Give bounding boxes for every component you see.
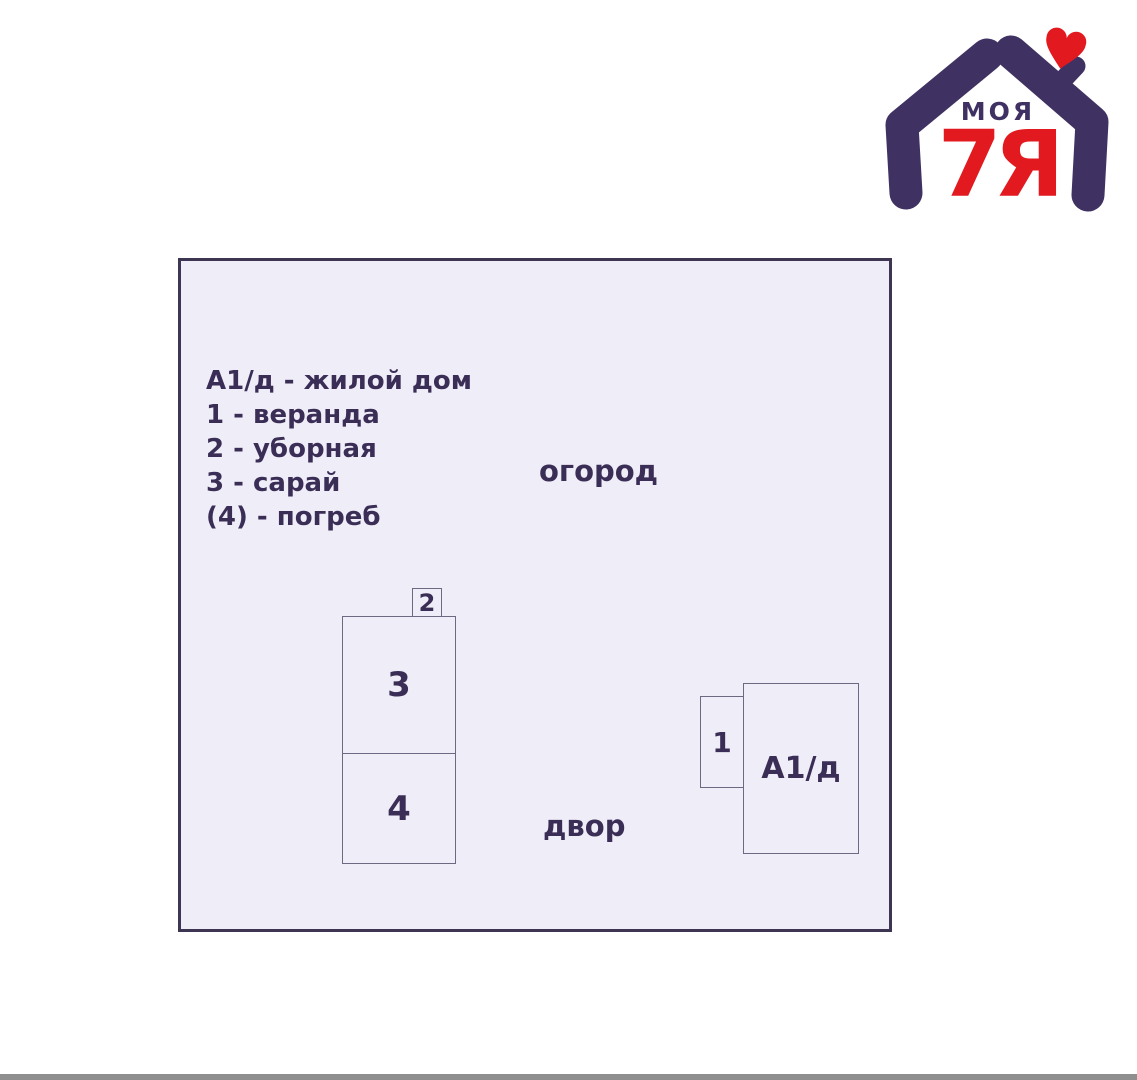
building-label: 1 <box>712 726 731 759</box>
legend-item-cellar: (4) - погреб <box>206 500 472 534</box>
legend-item-house: А1/д - жилой дом <box>206 364 472 398</box>
building-label: 4 <box>387 789 411 829</box>
plan-legend: А1/д - жилой дом 1 - веранда 2 - уборная… <box>206 364 472 534</box>
building-outhouse: 2 <box>412 588 442 617</box>
bottom-bar <box>0 1074 1137 1080</box>
page-background: МОЯ 7Я А1/д - жилой дом 1 - веранда 2 - … <box>0 0 1137 1080</box>
building-label: 2 <box>419 589 436 617</box>
building-main-house: А1/д <box>743 683 859 854</box>
legend-item-outhouse: 2 - уборная <box>206 432 472 466</box>
site-plan: А1/д - жилой дом 1 - веранда 2 - уборная… <box>178 258 892 932</box>
building-label: А1/д <box>761 751 840 786</box>
building-cellar: 4 <box>342 753 456 864</box>
legend-item-shed: 3 - сарай <box>206 466 472 500</box>
brand-logo: МОЯ 7Я <box>880 25 1110 230</box>
area-label-yard: двор <box>543 809 625 843</box>
building-shed: 3 <box>342 616 456 754</box>
logo-text-7ya: 7Я <box>926 117 1068 213</box>
building-veranda: 1 <box>700 696 744 788</box>
building-label: 3 <box>387 665 411 705</box>
area-label-garden: огород <box>539 454 658 488</box>
legend-item-veranda: 1 - веранда <box>206 398 472 432</box>
